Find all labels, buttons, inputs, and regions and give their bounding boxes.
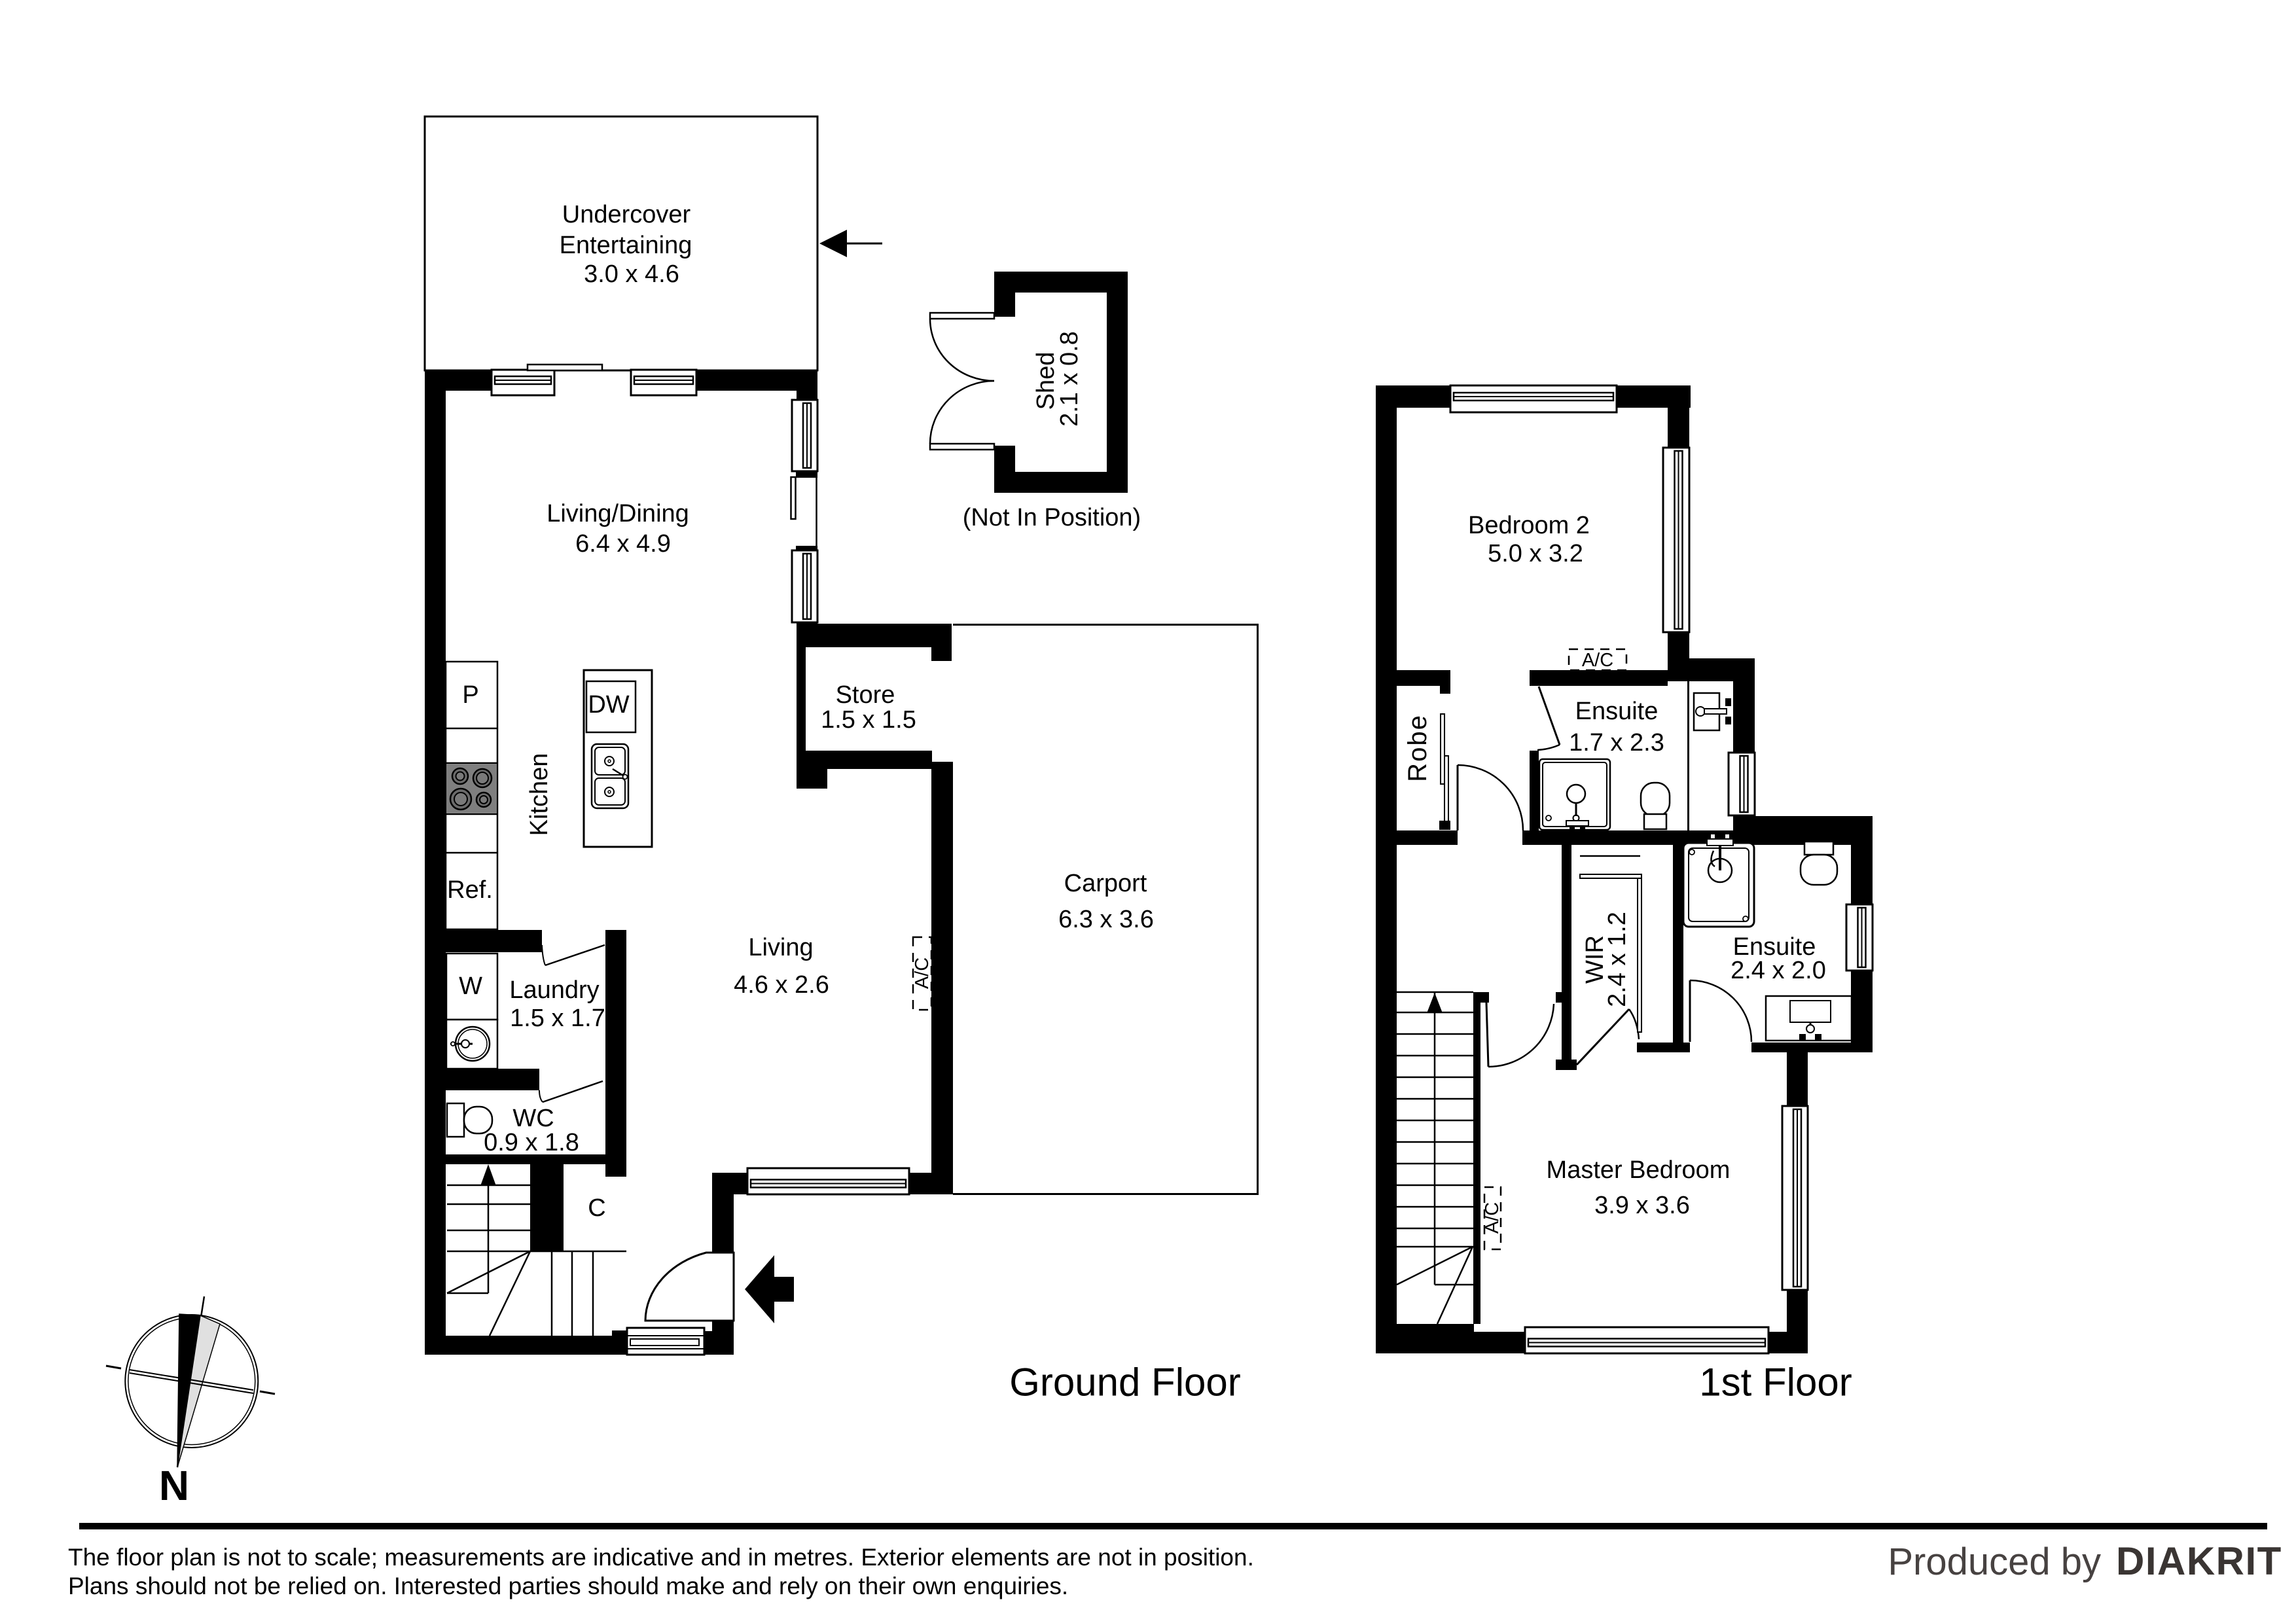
svg-text:Store: Store (836, 681, 895, 709)
svg-text:Plans should not be relied on.: Plans should not be relied on. Intereste… (68, 1573, 1068, 1599)
svg-text:2.4 x 1.2: 2.4 x 1.2 (1604, 912, 1631, 1007)
svg-text:Master Bedroom: Master Bedroom (1547, 1156, 1731, 1184)
svg-text:1.5 x 1.7: 1.5 x 1.7 (510, 1005, 605, 1032)
svg-text:5.0 x 3.2: 5.0 x 3.2 (1488, 540, 1583, 567)
svg-text:A/C: A/C (912, 957, 933, 989)
svg-text:W: W (459, 972, 482, 1000)
svg-text:6.3 x 3.6: 6.3 x 3.6 (1058, 906, 1154, 933)
svg-text:1.5 x 1.5: 1.5 x 1.5 (821, 706, 916, 734)
svg-text:Robe: Robe (1403, 714, 1432, 782)
svg-text:Ref.: Ref. (447, 876, 493, 904)
svg-text:3.9 x 3.6: 3.9 x 3.6 (1594, 1192, 1690, 1219)
svg-text:A/C: A/C (1482, 1202, 1503, 1234)
svg-text:Laundry: Laundry (509, 976, 599, 1004)
svg-text:DIAKRIT: DIAKRIT (2116, 1539, 2282, 1583)
svg-text:Bedroom 2: Bedroom 2 (1468, 512, 1590, 539)
svg-text:N: N (159, 1462, 189, 1509)
svg-text:Produced by: Produced by (1888, 1541, 2101, 1583)
svg-text:P: P (462, 681, 478, 709)
svg-text:6.4 x 4.9: 6.4 x 4.9 (575, 530, 671, 558)
svg-text:Living: Living (748, 934, 813, 961)
svg-text:0.9 x 1.8: 0.9 x 1.8 (484, 1129, 579, 1156)
svg-text:Living/Dining: Living/Dining (547, 500, 689, 527)
svg-text:Entertaining: Entertaining (560, 232, 692, 259)
svg-text:WC: WC (512, 1105, 554, 1132)
svg-text:A/C: A/C (1582, 650, 1613, 671)
svg-text:2.4 x 2.0: 2.4 x 2.0 (1731, 957, 1826, 984)
svg-text:Ensuite: Ensuite (1575, 698, 1659, 725)
svg-text:(Not In Position): (Not In Position) (963, 504, 1141, 531)
svg-text:3.0 x 4.6: 3.0 x 4.6 (584, 260, 679, 288)
svg-text:The floor plan is not to scale: The floor plan is not to scale; measurem… (68, 1544, 1254, 1571)
svg-text:Kitchen: Kitchen (526, 753, 553, 836)
svg-text:1st Floor: 1st Floor (1699, 1361, 1852, 1404)
svg-text:DW: DW (588, 691, 629, 719)
svg-text:Undercover: Undercover (562, 201, 691, 228)
svg-text:C: C (588, 1194, 605, 1222)
svg-text:Ground Floor: Ground Floor (1009, 1361, 1241, 1404)
svg-text:Carport: Carport (1064, 870, 1147, 897)
svg-text:4.6 x 2.6: 4.6 x 2.6 (734, 971, 829, 999)
svg-text:1.7 x 2.3: 1.7 x 2.3 (1569, 729, 1664, 757)
svg-text:2.1 x 0.8: 2.1 x 0.8 (1056, 331, 1083, 427)
